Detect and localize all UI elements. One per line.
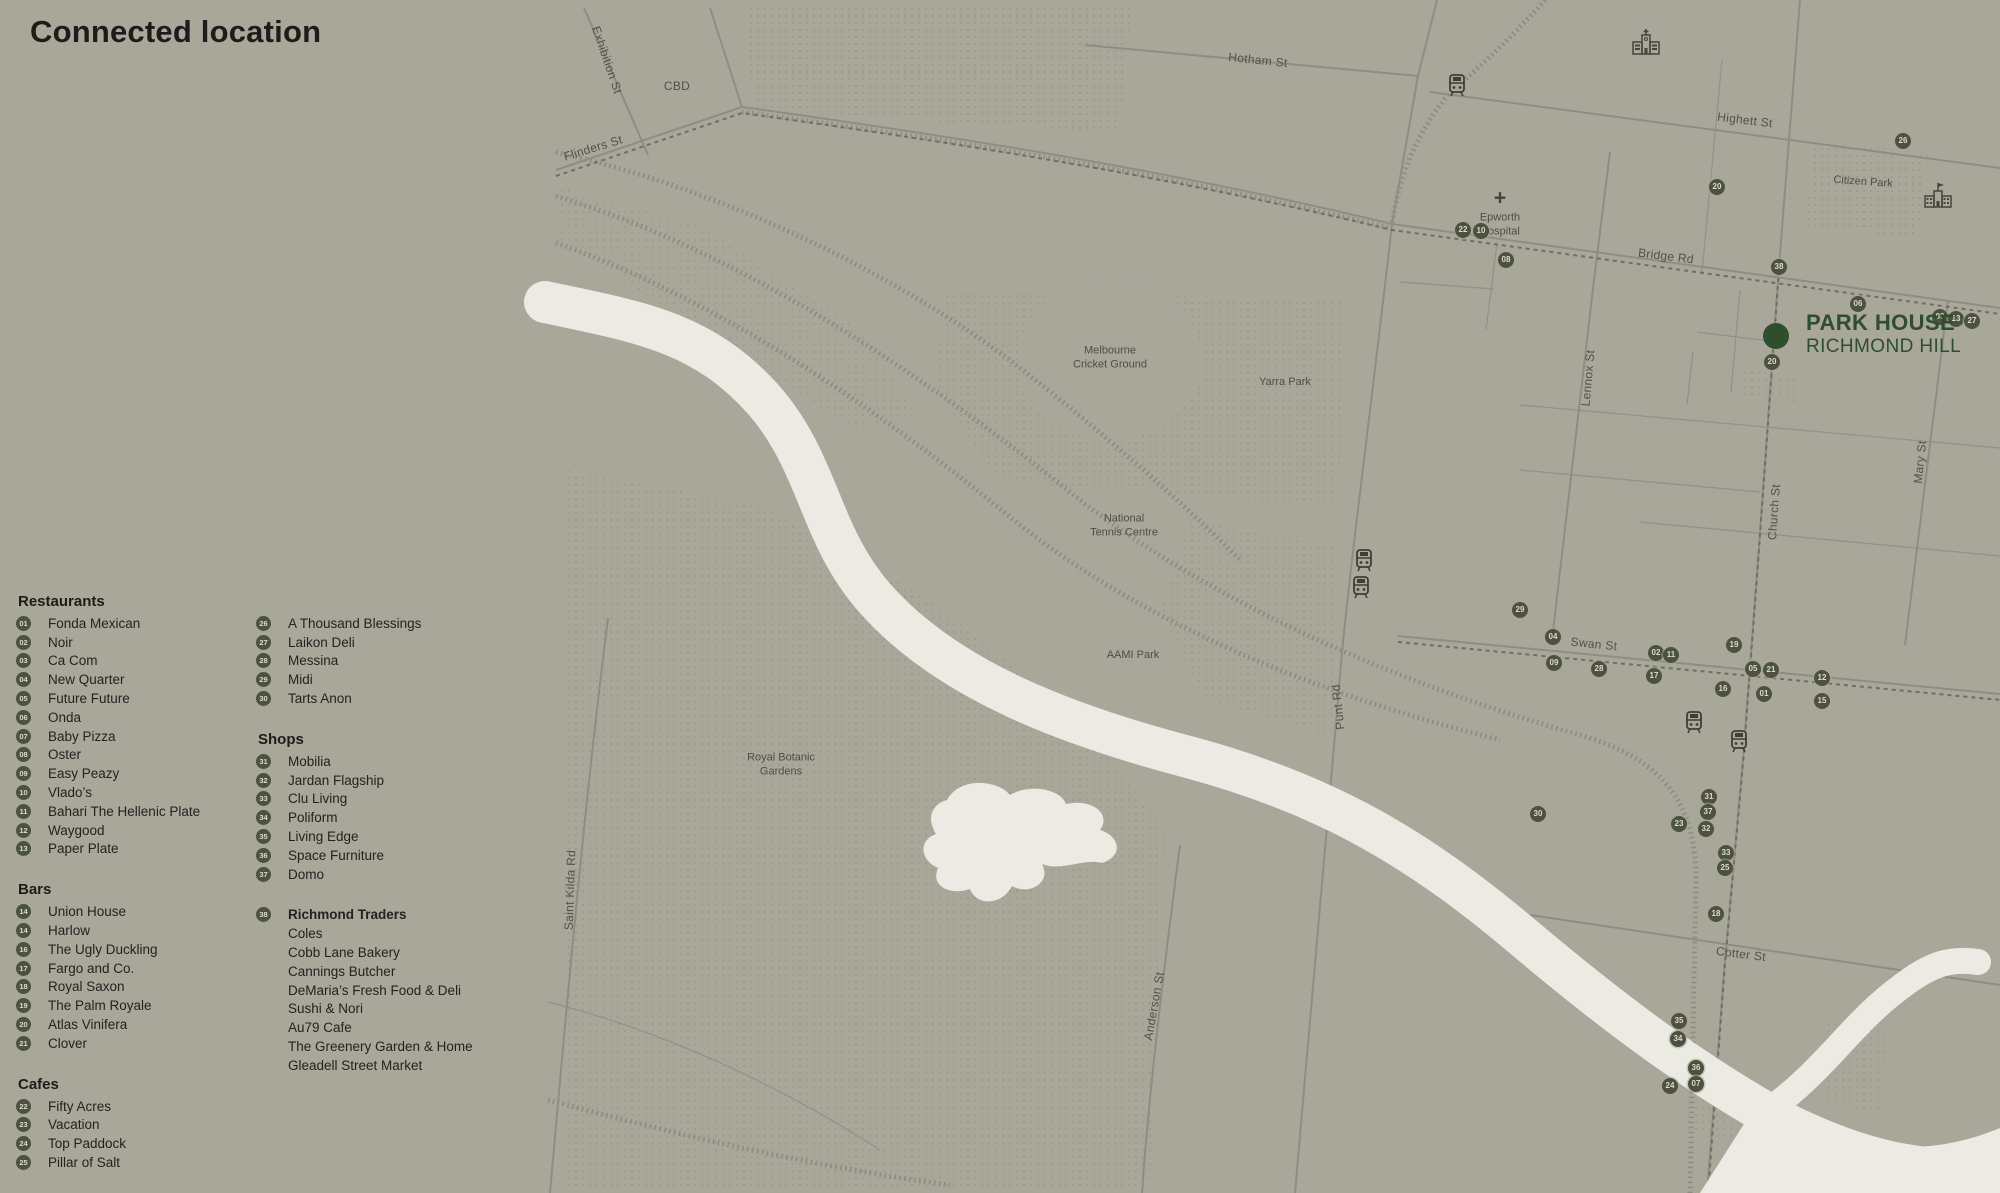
map-marker: 36 [1688,1060,1704,1076]
map-marker: 08 [1498,252,1514,268]
legend-item: Cannings Butcher [256,962,506,981]
legend-item: 30Tarts Anon [256,689,506,708]
legend-item-label: Poliform [288,810,338,825]
legend-item-label: Clover [48,1036,87,1051]
legend-item-label: The Greenery Garden & Home [288,1039,473,1054]
legend-item-number-badge: 18 [16,979,31,994]
legend-item: 12Waygood [16,821,266,840]
legend-item-number-badge: 36 [256,848,271,863]
map-marker: 22 [1455,222,1471,238]
legend-item-number-badge: 13 [16,841,31,856]
place-label-line: National [1090,512,1158,526]
legend-item-number-badge: 37 [256,867,271,882]
legend-item: 38Richmond Traders [256,906,506,925]
place-label-line: AAMI Park [1107,648,1160,662]
legend-item-label: Onda [48,710,81,725]
legend-item-label: Tarts Anon [288,691,352,706]
legend-item: 08Oster [16,746,266,765]
legend-item-label: Union House [48,904,126,919]
legend-item-number-badge: 28 [256,653,271,668]
map-marker: 23 [1671,816,1687,832]
park-house-name: PARK HOUSE [1806,310,1961,336]
map-marker: 24 [1662,1078,1678,1094]
train-station-icon [1447,73,1467,97]
legend-item-label: Future Future [48,691,130,706]
map-marker: 29 [1512,602,1528,618]
legend-item-number-badge: 04 [16,672,31,687]
legend-item-number-badge: 07 [16,729,31,744]
legend-item-label: Pillar of Salt [48,1155,120,1170]
place-label: Royal BotanicGardens [747,751,815,780]
map-marker: 20 [1709,179,1725,195]
legend-item-number-badge: 24 [16,1136,31,1151]
legend-item: 37Domo [256,865,506,884]
legend-section-header: Shops [258,730,506,749]
map-marker: 18 [1708,906,1724,922]
legend-item-label: Waygood [48,823,105,838]
legend-item-number-badge: 09 [16,766,31,781]
legend-section-header: Bars [18,880,266,899]
legend-item-label: A Thousand Blessings [288,616,421,631]
legend-item-label: Oster [48,747,81,762]
school-icon [1923,181,1953,211]
legend-item-label: The Ugly Duckling [48,942,158,957]
legend-item-label: Fifty Acres [48,1099,111,1114]
legend-item: Gleadell Street Market [256,1056,506,1075]
place-label: Yarra Park [1259,375,1311,389]
legend-item: The Greenery Garden & Home [256,1037,506,1056]
place-label-line: Cricket Ground [1073,358,1147,372]
map-marker: 34 [1670,1031,1686,1047]
street-label: CBD [664,79,690,93]
legend-item-label: Fargo and Co. [48,961,134,976]
legend-item: 03Ca Com [16,652,266,671]
legend-item: DeMaria’s Fresh Food & Deli [256,981,506,1000]
legend-item-number-badge: 34 [256,810,271,825]
legend-item-label: Bahari The Hellenic Plate [48,804,200,819]
legend-item-number-badge: 27 [256,635,271,650]
place-label: MelbourneCricket Ground [1073,344,1147,373]
map-marker: 37 [1700,804,1716,820]
legend-section-header: Cafes [18,1075,266,1094]
legend-item: 16The Ugly Duckling [16,940,266,959]
map-marker: 09 [1546,655,1562,671]
legend-item-number-badge: 35 [256,829,271,844]
legend-item-number-badge: 32 [256,773,271,788]
place-label-line: Royal Botanic [747,751,815,765]
map-marker: 15 [1814,693,1830,709]
legend-item-number-badge: 17 [16,961,31,976]
map-marker: 19 [1726,637,1742,653]
legend-item: 07Baby Pizza [16,727,266,746]
legend-item-number-badge: 14 [16,923,31,938]
legend-item-label: Vacation [48,1117,100,1132]
map-marker: 02 [1648,645,1664,661]
legend-item-label: Coles [288,926,323,941]
legend-item-number-badge: 19 [16,998,31,1013]
legend-item: 13Paper Plate [16,840,266,859]
map-marker: 28 [1591,661,1607,677]
legend-item: 20Atlas Vinifera [16,1015,266,1034]
map-marker: 21 [1763,662,1779,678]
map-marker: 27 [1964,313,1980,329]
legend-item-number-badge: 21 [16,1036,31,1051]
legend-section-gap [256,884,506,906]
legend-item-number-badge: 26 [256,616,271,631]
map-marker: 17 [1646,668,1662,684]
train-station-icon [1354,548,1374,572]
street-label: Saint Kilda Rd [562,850,579,931]
legend-item: Sushi & Nori [256,1000,506,1019]
legend-item-number-badge: 30 [256,691,271,706]
legend-item-number-badge: 20 [16,1017,31,1032]
legend-item: 26A Thousand Blessings [256,614,506,633]
legend-item-number-badge: 02 [16,635,31,650]
legend-item-number-badge: 08 [16,747,31,762]
legend-item-label: Top Paddock [48,1136,126,1151]
legend-item-label: Ca Com [48,653,98,668]
legend-item-label: Richmond Traders [288,907,407,922]
legend-item-number-badge: 29 [256,672,271,687]
legend-item: 25Pillar of Salt [16,1153,266,1172]
legend-item: Cobb Lane Bakery [256,943,506,962]
park-house-dot [1763,323,1789,349]
legend-item-number-badge: 33 [256,791,271,806]
legend-item-label: Space Furniture [288,848,384,863]
legend-item-number-badge: 06 [16,710,31,725]
place-label-line: Yarra Park [1259,375,1311,389]
legend-section-header: Restaurants [18,592,266,611]
legend-item: 11Bahari The Hellenic Plate [16,802,266,821]
map-marker: 05 [1745,661,1761,677]
legend-item: 31Mobilia [256,752,506,771]
legend-item-label: Living Edge [288,829,359,844]
legend-item-number-badge: 12 [16,823,31,838]
map-marker: 38 [1771,259,1787,275]
legend-item-label: Fonda Mexican [48,616,140,631]
legend-item-label: Gleadell Street Market [288,1058,422,1073]
legend-item-label: Clu Living [288,791,347,806]
map-marker: 07 [1688,1076,1704,1092]
legend-item: 02Noir [16,633,266,652]
legend-item-label: Laikon Deli [288,635,355,650]
map-marker: 26 [1895,133,1911,149]
place-label-line: Melbourne [1073,344,1147,358]
legend-item-label: New Quarter [48,672,125,687]
legend-item: 06Onda [16,708,266,727]
legend-item-label: Domo [288,867,324,882]
legend-item-label: Messina [288,653,338,668]
legend-item-number-badge: 23 [16,1117,31,1132]
train-station-icon [1351,575,1371,599]
connected-location-map-page: Exhibition StFlinders StCBDHotham StHigh… [0,0,2000,1193]
legend-item: 35Living Edge [256,827,506,846]
legend-item: 19The Palm Royale [16,996,266,1015]
legend-item-number-badge: 38 [256,907,271,922]
map-marker: 04 [1545,629,1561,645]
legend-item-label: Royal Saxon [48,979,125,994]
legend-item: 23Vacation [16,1116,266,1135]
legend-item: 34Poliform [256,808,506,827]
legend-column: 26A Thousand Blessings27Laikon Deli28Mes… [256,614,506,1075]
legend-item: 36Space Furniture [256,846,506,865]
legend-item: 24Top Paddock [16,1134,266,1153]
legend-item-label: Midi [288,672,313,687]
map-marker: 32 [1698,821,1714,837]
legend-item-number-badge: 01 [16,616,31,631]
legend-item-number-badge: 31 [256,754,271,769]
legend-item-label: Cobb Lane Bakery [288,945,400,960]
legend-item: Au79 Cafe [256,1018,506,1037]
legend-item-label: Baby Pizza [48,729,116,744]
legend-item-number-badge: 16 [16,942,31,957]
map-marker: 12 [1814,670,1830,686]
park-house-subtitle: RICHMOND HILL [1806,336,1961,358]
place-label: AAMI Park [1107,648,1160,662]
legend-item-label: Au79 Cafe [288,1020,352,1035]
legend-item-label: Atlas Vinifera [48,1017,127,1032]
legend-item-number-badge: 14 [16,904,31,919]
legend-item-label: Noir [48,635,73,650]
train-station-icon [1729,729,1749,753]
legend-item: 21Clover [16,1034,266,1053]
legend-item-label: Paper Plate [48,841,119,856]
legend-column: Restaurants01Fonda Mexican02Noir03Ca Com… [16,592,266,1172]
map-marker: 35 [1671,1013,1687,1029]
legend-item-label: The Palm Royale [48,998,152,1013]
legend-item-label: Mobilia [288,754,331,769]
page-title: Connected location [30,14,321,50]
church-icon [1631,28,1661,56]
legend-item-number-badge: 25 [16,1155,31,1170]
legend-item-number-badge: 11 [16,804,31,819]
legend-item: 33Clu Living [256,790,506,809]
map-marker: 33 [1718,845,1734,861]
legend-item: 05Future Future [16,689,266,708]
legend-item-label: Cannings Butcher [288,964,395,979]
legend-item: 01Fonda Mexican [16,614,266,633]
map-marker: 11 [1663,647,1679,663]
legend-item: 17Fargo and Co. [16,959,266,978]
legend-item: 18Royal Saxon [16,978,266,997]
legend-item: 10Vlado’s [16,783,266,802]
map-marker: 25 [1717,860,1733,876]
map-marker: 16 [1715,681,1731,697]
place-label-line: Gardens [747,765,815,779]
map-marker: 01 [1756,686,1772,702]
legend-item-label: Harlow [48,923,90,938]
legend-item-label: Sushi & Nori [288,1001,363,1016]
place-label-line: Tennis Centre [1090,526,1158,540]
legend-item-number-badge: 22 [16,1099,31,1114]
hospital-cross-icon: + [1480,189,1520,208]
legend-item: 27Laikon Deli [256,633,506,652]
legend-item: 09Easy Peazy [16,764,266,783]
place-label-line: Epworth [1480,210,1520,224]
legend-item: 32Jardan Flagship [256,771,506,790]
place-label: NationalTennis Centre [1090,512,1158,541]
legend-item-number-badge: 03 [16,653,31,668]
legend-item: 04New Quarter [16,670,266,689]
train-station-icon [1684,710,1704,734]
map-marker: 31 [1701,789,1717,805]
map-marker: 30 [1530,806,1546,822]
legend-item-number-badge: 05 [16,691,31,706]
legend-item-number-badge: 10 [16,785,31,800]
legend-item: 22Fifty Acres [16,1097,266,1116]
legend-item-label: Jardan Flagship [288,773,384,788]
map-marker: 20 [1764,354,1780,370]
legend-item-label: Easy Peazy [48,766,119,781]
legend-item-label: DeMaria’s Fresh Food & Deli [288,983,461,998]
legend-item: 14Union House [16,902,266,921]
park-house-callout: PARK HOUSERICHMOND HILL [1806,310,1961,358]
legend-item: 28Messina [256,652,506,671]
legend-item: 14Harlow [16,921,266,940]
map-marker: 10 [1473,223,1489,239]
legend-item: 29Midi [256,670,506,689]
legend-item: Coles [256,924,506,943]
legend-item-label: Vlado’s [48,785,92,800]
